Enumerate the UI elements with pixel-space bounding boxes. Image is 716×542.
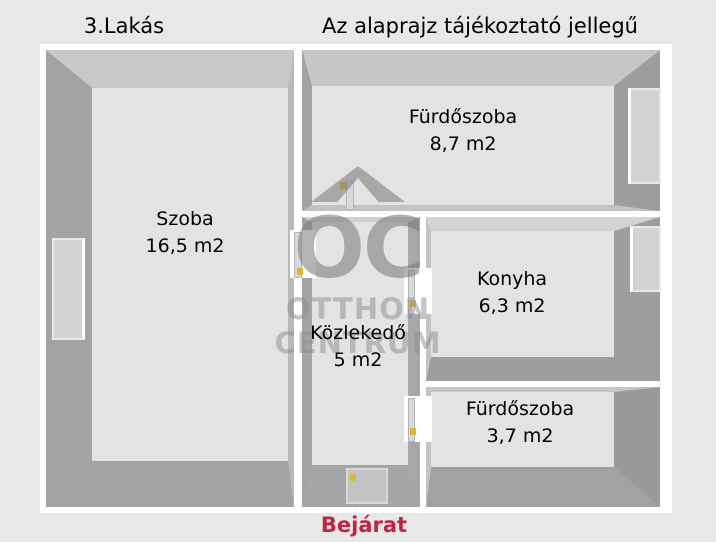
door-leaf-konyha: [408, 270, 415, 314]
door-handle-icon: [350, 474, 356, 481]
room-label-szoba: Szoba 16,5 m2: [146, 206, 225, 260]
room-label-furdoszoba-nagy: Fürdőszoba 8,7 m2: [409, 104, 517, 158]
room-name: Fürdőszoba: [466, 396, 574, 423]
door-leaf-furdoszoba-kis: [408, 398, 415, 442]
room-name: Konyha: [477, 266, 547, 293]
door-leaf-furdoszoba-nagy: [346, 180, 354, 210]
door-handle-icon: [297, 268, 303, 275]
room-name: Közlekedő: [310, 320, 406, 347]
room-label-kozlekedo: Közlekedő 5 m2: [310, 320, 406, 374]
room-area: 5 m2: [310, 347, 406, 374]
door-handle-icon: [410, 428, 416, 435]
room-name: Fürdőszoba: [409, 104, 517, 131]
room-label-furdoszoba-kis: Fürdőszoba 3,7 m2: [466, 396, 574, 450]
window-konyha: [630, 226, 661, 292]
floorplan-canvas: OC OTTHON CENTRUM Szoba 16,5 m2 Fürdőszo…: [40, 44, 672, 513]
apartment-title: 3.Lakás: [84, 14, 164, 38]
window-szoba: [52, 238, 85, 340]
disclaimer-text: Az alaprajz tájékoztató jellegű: [322, 14, 638, 38]
room-name: Szoba: [146, 206, 225, 233]
entrance-label: Bejárat: [321, 513, 407, 537]
room-label-konyha: Konyha 6,3 m2: [477, 266, 547, 320]
room-area: 3,7 m2: [466, 423, 574, 450]
room-area: 8,7 m2: [409, 131, 517, 158]
room-area: 16,5 m2: [146, 233, 225, 260]
room-area: 6,3 m2: [477, 293, 547, 320]
door-handle-icon: [410, 300, 416, 307]
window-furdoszoba: [628, 88, 661, 184]
door-handle-icon: [340, 182, 346, 189]
